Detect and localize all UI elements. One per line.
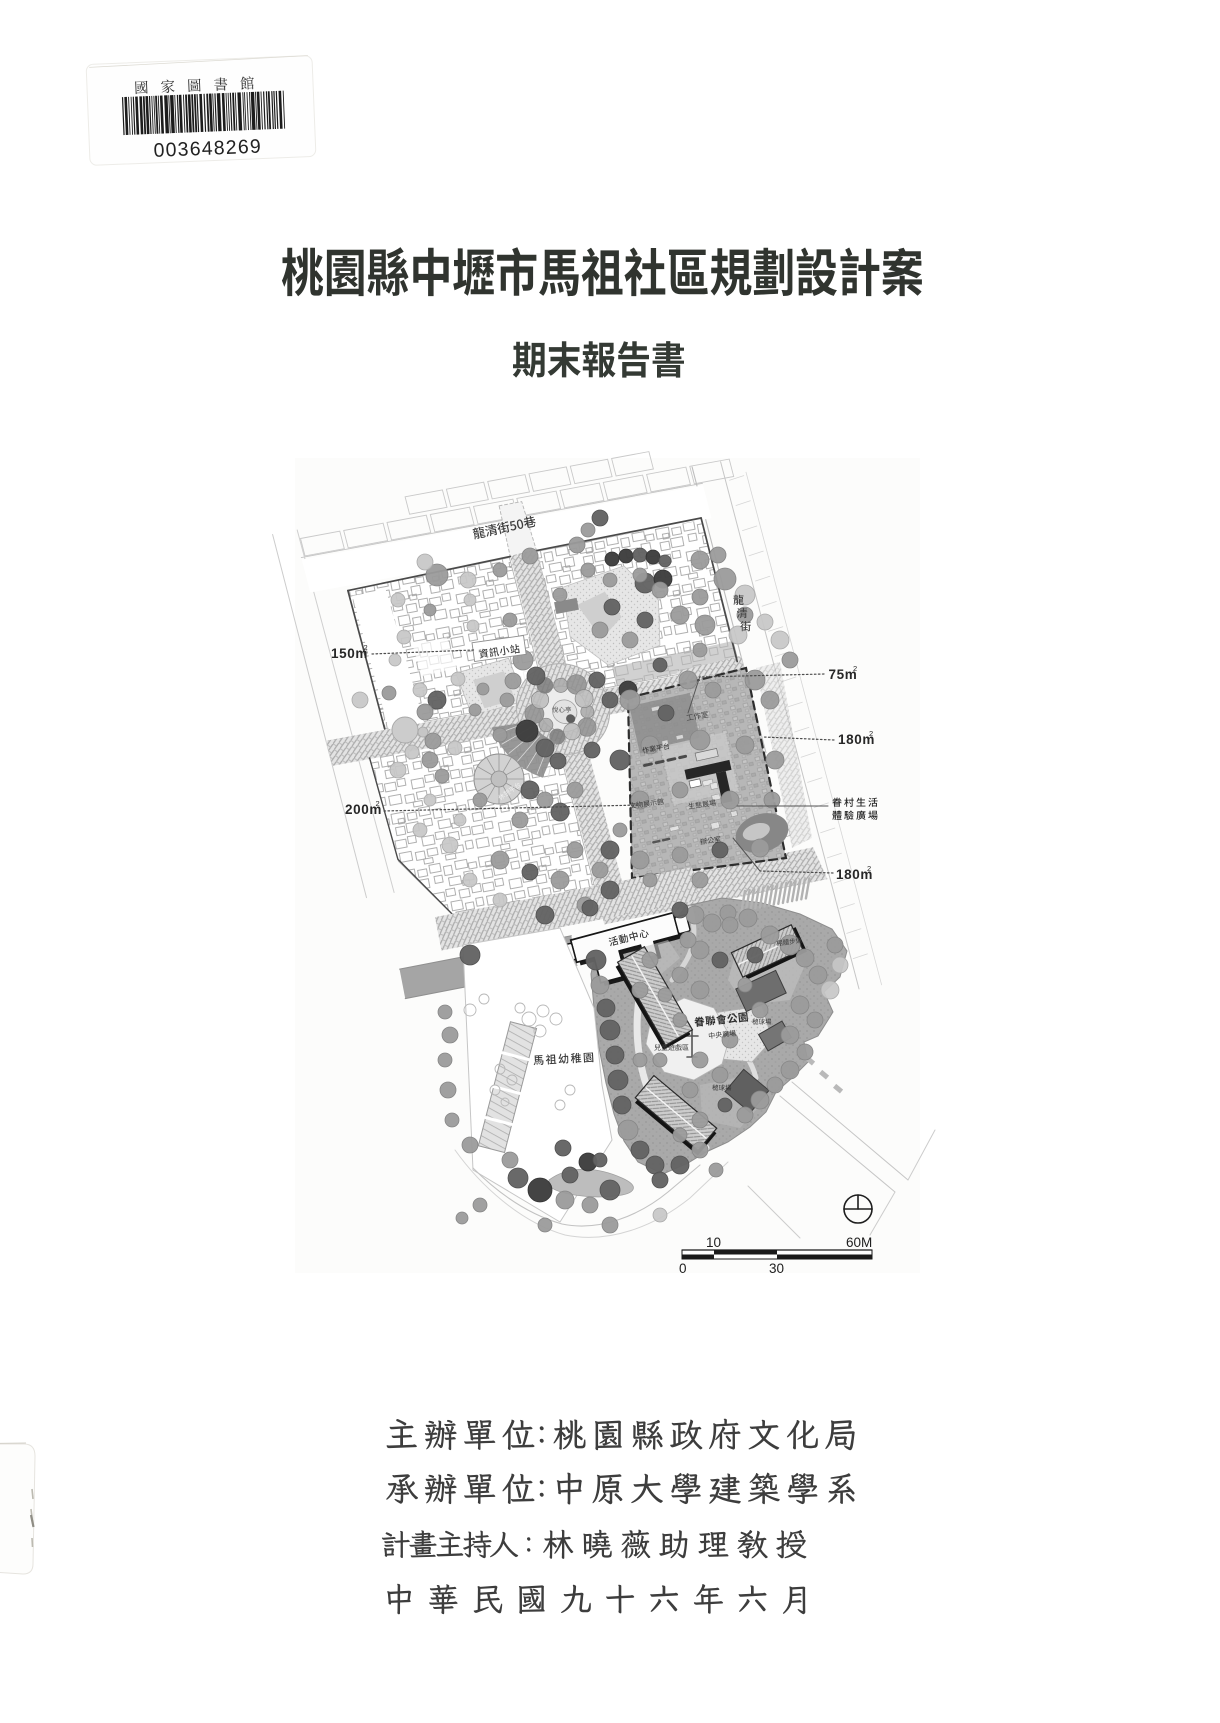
svg-text:60M: 60M	[846, 1235, 872, 1250]
svg-text:2: 2	[364, 643, 368, 652]
svg-text:2: 2	[867, 864, 871, 873]
svg-text:150m: 150m	[331, 646, 368, 661]
svg-text:2: 2	[853, 664, 857, 673]
svg-text:003648269: 003648269	[153, 136, 262, 162]
svg-text:0: 0	[679, 1261, 687, 1276]
svg-text:2: 2	[869, 729, 873, 738]
svg-text:10: 10	[706, 1235, 721, 1250]
svg-text:2: 2	[376, 799, 380, 808]
svg-text:30: 30	[769, 1261, 784, 1276]
